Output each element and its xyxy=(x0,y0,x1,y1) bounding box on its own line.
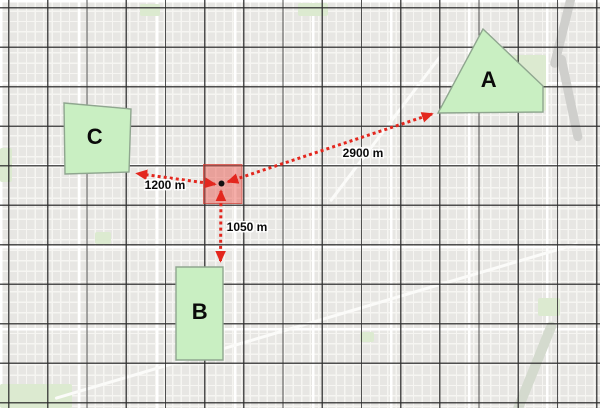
measure-arrow-to-a xyxy=(228,114,432,182)
zone-c-label: C xyxy=(87,124,103,150)
annotation-layer xyxy=(0,0,600,408)
zone-a-label: A xyxy=(481,67,497,93)
distance-label-to-a: 2900 m xyxy=(343,146,384,160)
map-canvas[interactable]: A B C 2900 m 1200 m 1050 m xyxy=(0,0,600,408)
origin-point-marker xyxy=(219,181,225,187)
distance-label-to-c: 1200 m xyxy=(145,178,186,192)
distance-label-to-b: 1050 m xyxy=(227,220,268,234)
zone-b-label: B xyxy=(192,299,208,325)
